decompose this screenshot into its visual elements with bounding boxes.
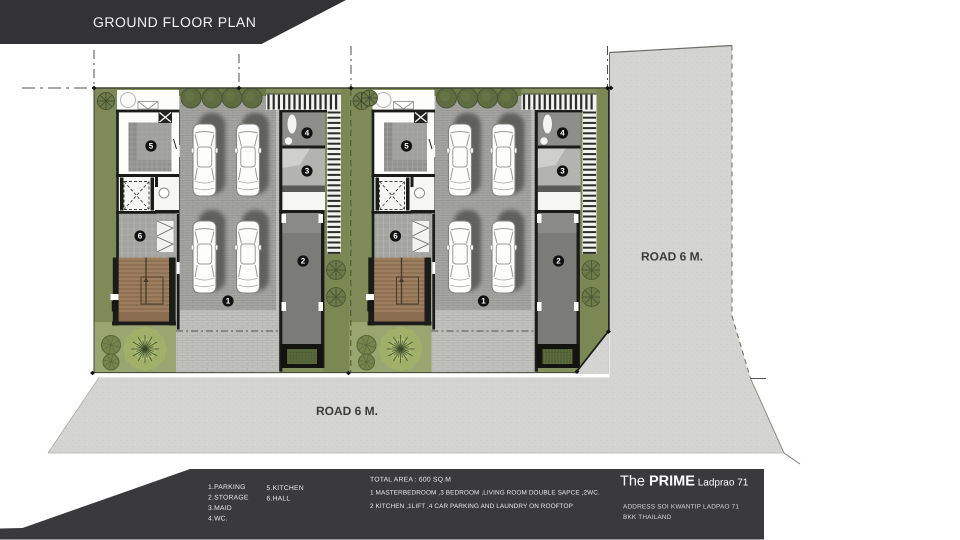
svg-text:4: 4	[560, 129, 565, 138]
svg-text:1: 1	[226, 297, 231, 306]
svg-text:2: 2	[556, 257, 561, 266]
svg-text:1: 1	[481, 297, 486, 306]
svg-text:2 KITCHEN ,1LIFT ,4 CAR PARKIN: 2 KITCHEN ,1LIFT ,4 CAR PARKING AND LAUN…	[370, 503, 573, 510]
svg-text:ADDRESS SOI KWANTIP LADPAO 71: ADDRESS SOI KWANTIP LADPAO 71	[623, 504, 739, 511]
svg-text:ROAD 6 M.: ROAD 6 M.	[641, 250, 703, 264]
svg-text:5.KITCHEN: 5.KITCHEN	[267, 485, 304, 492]
svg-text:3.MAID: 3.MAID	[208, 505, 232, 512]
svg-text:2: 2	[301, 257, 306, 266]
svg-text:ROAD 6 M.: ROAD 6 M.	[316, 404, 378, 418]
svg-text:5: 5	[149, 142, 154, 151]
svg-text:2.STORAGE: 2.STORAGE	[208, 495, 249, 502]
svg-text:TOTAL AREA : 600 SQ.M: TOTAL AREA : 600 SQ.M	[370, 477, 451, 484]
svg-text:3: 3	[560, 167, 565, 176]
svg-text:GROUND FLOOR PLAN: GROUND FLOOR PLAN	[93, 14, 256, 30]
svg-text:BKK THAILAND: BKK THAILAND	[623, 514, 672, 521]
svg-text:3: 3	[305, 167, 310, 176]
svg-text:1 MASTERBEDROOM ,3 BEDROOM ,LI: 1 MASTERBEDROOM ,3 BEDROOM ,LIVING ROOM …	[370, 490, 600, 497]
svg-text:6.HALL: 6.HALL	[267, 496, 291, 503]
svg-text:5: 5	[404, 142, 409, 151]
svg-text:6: 6	[393, 232, 398, 241]
svg-text:1.PARKING: 1.PARKING	[208, 484, 246, 491]
svg-text:6: 6	[138, 232, 143, 241]
svg-text:4.WC.: 4.WC.	[208, 516, 228, 523]
svg-text:4: 4	[305, 129, 310, 138]
